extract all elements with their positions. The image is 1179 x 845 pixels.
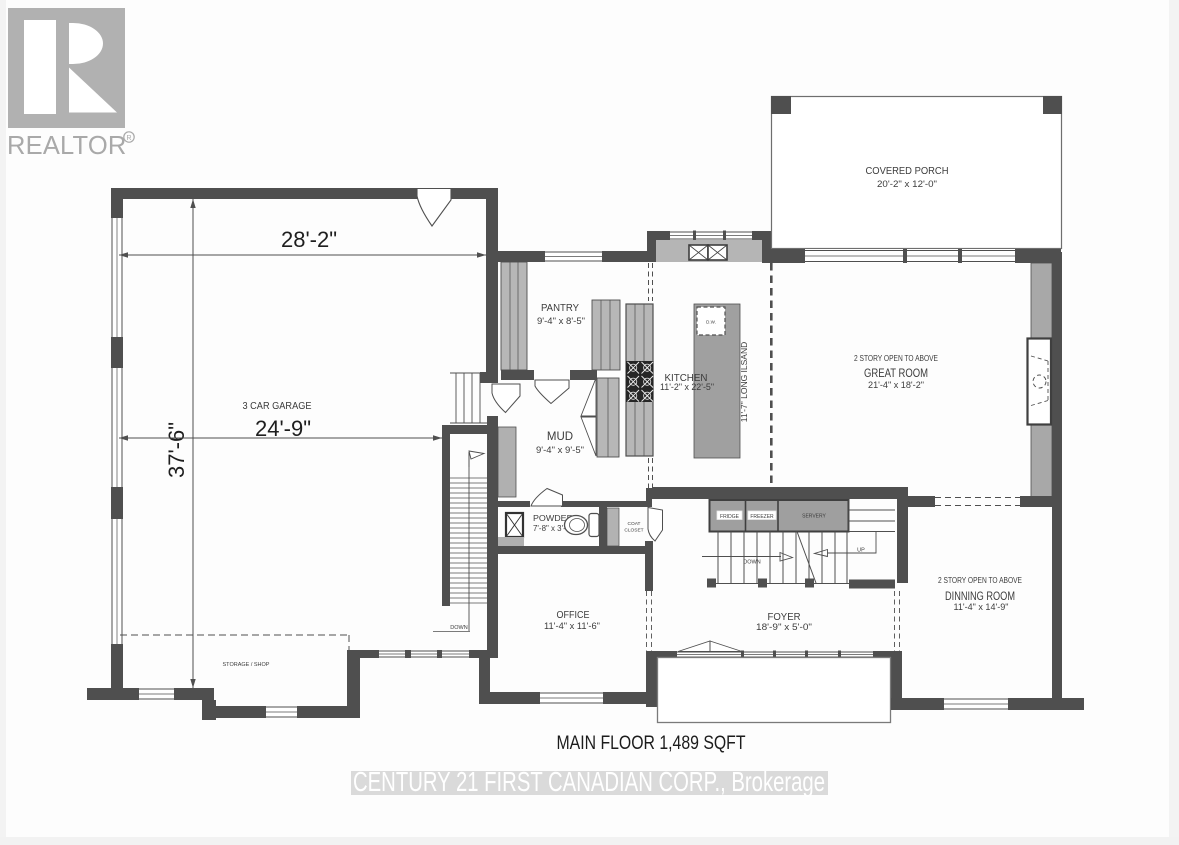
svg-text:9'-4" x 9'-5": 9'-4" x 9'-5" [536, 445, 584, 455]
svg-text:3 CAR GARAGE: 3 CAR GARAGE [243, 400, 312, 412]
svg-text:18'-9" x 5'-0": 18'-9" x 5'-0" [756, 622, 812, 633]
svg-text:21'-4" x 18'-2": 21'-4" x 18'-2" [868, 380, 924, 391]
svg-text:STORAGE / SHOP: STORAGE / SHOP [223, 662, 270, 668]
svg-text:2 STORY OPEN TO ABOVE: 2 STORY OPEN TO ABOVE [938, 576, 1022, 585]
svg-text:11'-4" x 14'-9": 11'-4" x 14'-9" [954, 602, 1009, 613]
svg-text:FRIDGE: FRIDGE [720, 514, 740, 520]
svg-text:COAT: COAT [628, 521, 641, 527]
svg-text:20'-2" x 12'-0": 20'-2" x 12'-0" [877, 179, 937, 189]
svg-text:11'-2" x 22'-5": 11'-2" x 22'-5" [660, 382, 714, 392]
svg-text:R: R [126, 135, 131, 142]
svg-text:28'-2": 28'-2" [281, 227, 337, 252]
svg-text:24'-9": 24'-9" [255, 416, 311, 441]
svg-text:SERVERY: SERVERY [802, 514, 826, 520]
svg-text:11'-4" x 11'-6": 11'-4" x 11'-6" [544, 621, 600, 632]
svg-text:11'-7" LONG ILSAND: 11'-7" LONG ILSAND [739, 342, 749, 423]
svg-text:DOWN: DOWN [743, 560, 760, 566]
svg-text:REALTOR: REALTOR [7, 132, 127, 160]
svg-text:OFFICE: OFFICE [557, 609, 590, 621]
svg-text:MAIN FLOOR 1,489 SQFT: MAIN FLOOR 1,489 SQFT [557, 733, 746, 754]
svg-text:2 STORY OPEN TO ABOVE: 2 STORY OPEN TO ABOVE [854, 354, 938, 363]
svg-text:CENTURY 21 FIRST CANADIAN CORP: CENTURY 21 FIRST CANADIAN CORP., Brokera… [353, 766, 825, 797]
svg-text:GREAT ROOM: GREAT ROOM [864, 368, 928, 380]
svg-text:MUD: MUD [547, 431, 573, 443]
svg-text:DOWN: DOWN [450, 625, 467, 631]
svg-text:9'-4" x 8'-5": 9'-4" x 8'-5" [537, 316, 585, 326]
svg-text:CLOSET: CLOSET [624, 528, 643, 534]
svg-text:COVERED PORCH: COVERED PORCH [866, 166, 949, 177]
svg-text:D.W.: D.W. [706, 320, 716, 325]
svg-text:UP: UP [857, 548, 865, 554]
svg-text:PANTRY: PANTRY [541, 302, 579, 314]
svg-text:37'-6": 37'-6" [164, 422, 189, 478]
svg-text:FREEZER: FREEZER [750, 514, 774, 520]
